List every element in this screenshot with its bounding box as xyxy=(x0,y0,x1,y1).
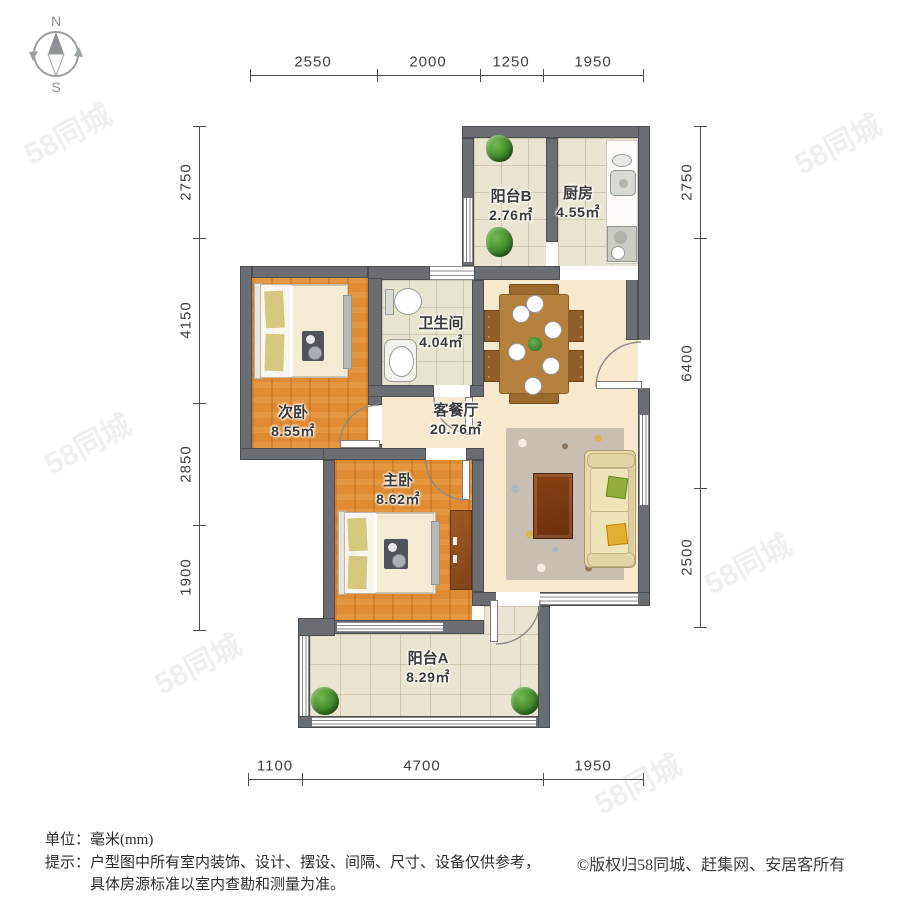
kitchen-opening xyxy=(560,266,638,280)
basin-bowl xyxy=(389,346,414,377)
dim-label: 2550 xyxy=(294,54,331,71)
doorway xyxy=(434,385,470,397)
plate xyxy=(524,377,542,395)
dim-label: 2000 xyxy=(409,54,446,71)
room-area: 4.55㎡ xyxy=(556,204,600,222)
bed xyxy=(254,283,351,379)
compass-icon: N S xyxy=(20,8,92,100)
burner xyxy=(614,231,627,244)
dim-label: 1250 xyxy=(492,54,529,71)
dim-label: 6400 xyxy=(679,344,696,381)
wall xyxy=(470,385,484,397)
wall xyxy=(472,460,484,592)
coffee-table xyxy=(533,473,573,539)
dim-label: 2500 xyxy=(679,538,696,575)
bed-pillow xyxy=(263,333,285,373)
bed-footrail xyxy=(343,295,352,369)
toilet-tank xyxy=(385,289,394,315)
watermark-text: 58同城 xyxy=(15,91,118,174)
bed-pillow xyxy=(346,555,368,591)
tip-note-line1: 提示：户型图中所有室内装饰、设计、摆设、间隔、尺寸、设备仅供参考， xyxy=(45,851,540,872)
bed xyxy=(338,511,439,595)
compass-south-label: S xyxy=(51,79,60,95)
wall xyxy=(626,278,638,340)
dining-chair xyxy=(568,350,584,382)
balcony-b-passage xyxy=(546,242,558,266)
doorway xyxy=(496,592,540,606)
sofa-armrest xyxy=(587,453,635,468)
dimension-line-top xyxy=(250,75,643,76)
dimension-line-bottom xyxy=(248,779,643,780)
room-label-bedroom-second: 次卧 8.55㎡ xyxy=(271,404,315,440)
window xyxy=(299,636,309,716)
washbasin-icon xyxy=(384,339,417,382)
wall xyxy=(474,266,560,280)
watermark-text: 58同城 xyxy=(585,741,688,824)
room-label-bathroom: 卫生间 4.04㎡ xyxy=(418,315,463,351)
entry-door-leaf xyxy=(596,381,642,389)
dim-tick xyxy=(193,238,206,239)
wall xyxy=(240,266,252,460)
kettle xyxy=(308,346,322,360)
dim-tick xyxy=(694,238,707,239)
wall xyxy=(368,385,434,397)
cup xyxy=(388,543,397,552)
plate xyxy=(542,357,560,375)
doorway xyxy=(426,448,466,460)
dim-tick xyxy=(694,126,707,127)
floorplan-page: 58同城 58同城 58同城 58同城 58同城 58同城 58同城 58同城 … xyxy=(0,0,900,900)
dim-label: 1950 xyxy=(574,54,611,71)
cup xyxy=(306,335,315,344)
dim-tick xyxy=(643,773,644,786)
sofa-pillow xyxy=(606,476,629,500)
dim-tick xyxy=(694,488,707,489)
wall xyxy=(538,606,550,728)
dim-tick xyxy=(694,627,707,628)
dim-label: 1900 xyxy=(178,558,195,595)
bed-tray xyxy=(384,539,408,569)
sink-drain xyxy=(619,179,628,188)
dim-tick xyxy=(250,69,251,82)
wall xyxy=(298,618,335,636)
door-leaf xyxy=(490,600,498,642)
room-name: 卫生间 xyxy=(418,315,463,334)
toilet-bowl xyxy=(394,288,422,315)
door-leaf xyxy=(340,440,380,448)
dim-tick xyxy=(193,403,206,404)
dining-chair xyxy=(568,310,584,342)
wardrobe xyxy=(450,510,472,590)
plant xyxy=(511,687,539,715)
centerpiece-plant xyxy=(528,337,542,351)
sofa-armrest xyxy=(587,552,635,567)
room-area: 8.62㎡ xyxy=(376,491,420,509)
dim-tick xyxy=(543,773,544,786)
dim-tick xyxy=(193,126,206,127)
watermark-text: 58同城 xyxy=(145,621,248,704)
dim-tick xyxy=(302,773,303,786)
watermark-text: 58同城 xyxy=(695,521,798,604)
kettle xyxy=(392,554,406,568)
window xyxy=(337,622,443,632)
compass-north-label: N xyxy=(51,13,61,29)
bed-tray xyxy=(302,331,324,361)
window xyxy=(639,415,649,505)
sink-icon xyxy=(610,170,636,196)
plant xyxy=(311,687,339,715)
window xyxy=(540,593,638,605)
bed-pillow xyxy=(263,289,286,329)
room-area: 20.76㎡ xyxy=(430,421,482,439)
dimension-line-right xyxy=(700,126,701,627)
room-area: 2.76㎡ xyxy=(489,207,533,225)
dim-tick xyxy=(193,630,206,631)
plate xyxy=(526,295,544,313)
room-label-balcony-a: 阳台A 8.29㎡ xyxy=(406,650,450,686)
unit-note: 单位：毫米(mm) xyxy=(45,828,153,849)
wall xyxy=(323,460,335,634)
bed-pillow xyxy=(346,516,369,552)
copyright-note: ©版权归58同城、赶集网、安居客所有 xyxy=(577,851,845,875)
room-name: 客餐厅 xyxy=(430,402,482,421)
wall xyxy=(472,280,484,397)
room-area: 8.55㎡ xyxy=(271,423,315,441)
watermark-text: 58同城 xyxy=(785,101,888,184)
dim-tick xyxy=(480,69,481,82)
wall xyxy=(323,448,426,460)
wardrobe-handle xyxy=(453,537,457,545)
dim-tick xyxy=(377,69,378,82)
room-label-kitchen: 厨房 4.55㎡ xyxy=(556,185,600,221)
dim-tick xyxy=(248,773,249,786)
window xyxy=(463,198,473,262)
room-name: 厨房 xyxy=(556,185,600,204)
sofa xyxy=(584,450,636,568)
plate xyxy=(544,321,562,339)
dining-table xyxy=(499,294,569,394)
room-name: 次卧 xyxy=(271,404,315,423)
bed-footrail xyxy=(431,521,440,585)
room-name: 阳台A xyxy=(406,650,450,669)
dim-label: 2850 xyxy=(178,445,195,482)
dim-label: 2750 xyxy=(178,163,195,200)
dim-label: 1100 xyxy=(257,758,293,775)
plant xyxy=(486,227,513,257)
tip-note-line2: 具体房源标准以室内查勘和测量为准。 xyxy=(90,873,345,894)
dining-chair xyxy=(484,310,500,342)
burner xyxy=(611,246,625,260)
dim-label: 1950 xyxy=(574,758,611,775)
room-name: 主卧 xyxy=(376,472,420,491)
room-area: 4.04㎡ xyxy=(418,334,463,352)
wardrobe-handle xyxy=(453,555,457,563)
doorway xyxy=(368,405,382,444)
watermark-text: 58同城 xyxy=(35,401,138,484)
stove-icon xyxy=(607,226,637,262)
faucet-icon xyxy=(612,154,632,167)
dimension-line-left xyxy=(199,126,200,630)
wall xyxy=(252,266,368,278)
tip-prefix: 提示： xyxy=(45,855,90,871)
window xyxy=(312,717,536,727)
dim-tick xyxy=(193,525,206,526)
toilet-icon xyxy=(385,287,422,315)
window xyxy=(430,266,474,280)
room-label-bedroom-master: 主卧 8.62㎡ xyxy=(376,472,420,508)
room-area: 8.29㎡ xyxy=(406,669,450,687)
dim-label: 2750 xyxy=(679,163,696,200)
dim-label: 4700 xyxy=(403,758,440,775)
room-name: 阳台B xyxy=(489,188,533,207)
dim-label: 4150 xyxy=(178,301,195,338)
dim-tick xyxy=(543,69,544,82)
dining-chair xyxy=(484,350,500,382)
tip-text: 户型图中所有室内装饰、设计、摆设、间隔、尺寸、设备仅供参考， xyxy=(90,855,540,871)
room-label-balcony-b: 阳台B 2.76㎡ xyxy=(489,188,533,224)
dim-tick xyxy=(643,69,644,82)
sofa-pillow xyxy=(606,523,628,546)
plant xyxy=(486,135,513,162)
room-label-living-dining: 客餐厅 20.76㎡ xyxy=(430,402,482,438)
wall xyxy=(466,448,484,460)
door-leaf xyxy=(462,460,470,500)
plate xyxy=(508,343,526,361)
